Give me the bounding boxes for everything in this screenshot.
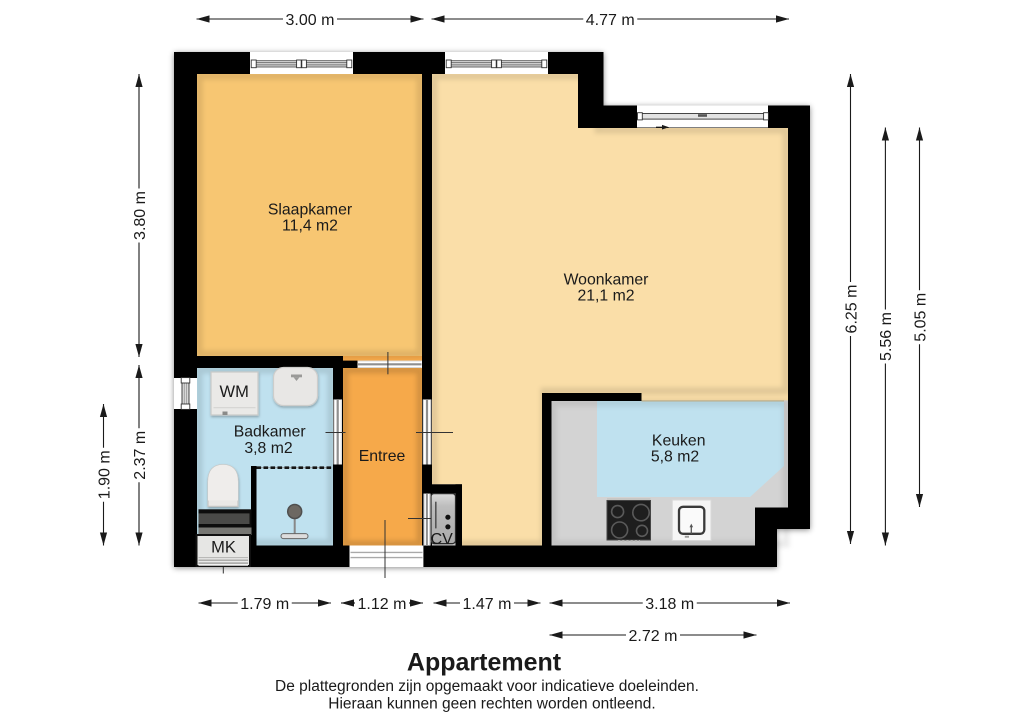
svg-text:11,4 m2: 11,4 m2 (282, 218, 338, 235)
svg-text:Keuken: Keuken (652, 432, 706, 449)
svg-text:2.72 m: 2.72 m (629, 628, 678, 645)
svg-text:5.05 m: 5.05 m (912, 293, 929, 342)
svg-text:1.90 m: 1.90 m (96, 450, 113, 499)
svg-text:1.79 m: 1.79 m (240, 596, 289, 613)
svg-text:CV: CV (431, 531, 454, 548)
svg-text:Hieraan kunnen geen rechten wo: Hieraan kunnen geen rechten worden ontle… (328, 696, 655, 713)
svg-text:Slaapkamer: Slaapkamer (268, 201, 352, 218)
svg-text:1.47 m: 1.47 m (463, 596, 512, 613)
svg-text:Appartement: Appartement (407, 648, 562, 676)
svg-text:Entree: Entree (359, 448, 406, 465)
svg-text:6.25 m: 6.25 m (843, 285, 860, 334)
svg-text:Woonkamer: Woonkamer (564, 271, 649, 288)
svg-text:MK: MK (211, 538, 236, 556)
svg-text:Badkamer: Badkamer (234, 424, 306, 441)
svg-text:5,8 m2: 5,8 m2 (651, 448, 699, 465)
svg-text:4.77 m: 4.77 m (586, 12, 635, 29)
svg-text:1.12 m: 1.12 m (358, 596, 407, 613)
svg-text:3,8 m2: 3,8 m2 (244, 440, 292, 457)
svg-text:21,1 m2: 21,1 m2 (577, 288, 634, 305)
svg-text:De plattegronden zijn opgemaak: De plattegronden zijn opgemaakt voor ind… (275, 678, 699, 695)
svg-text:2.37 m: 2.37 m (132, 431, 149, 480)
svg-text:3.00 m: 3.00 m (286, 12, 335, 29)
svg-text:3.18 m: 3.18 m (645, 596, 694, 613)
svg-text:3.80 m: 3.80 m (132, 191, 149, 240)
svg-text:5.56 m: 5.56 m (878, 312, 895, 361)
svg-text:WM: WM (220, 383, 249, 401)
